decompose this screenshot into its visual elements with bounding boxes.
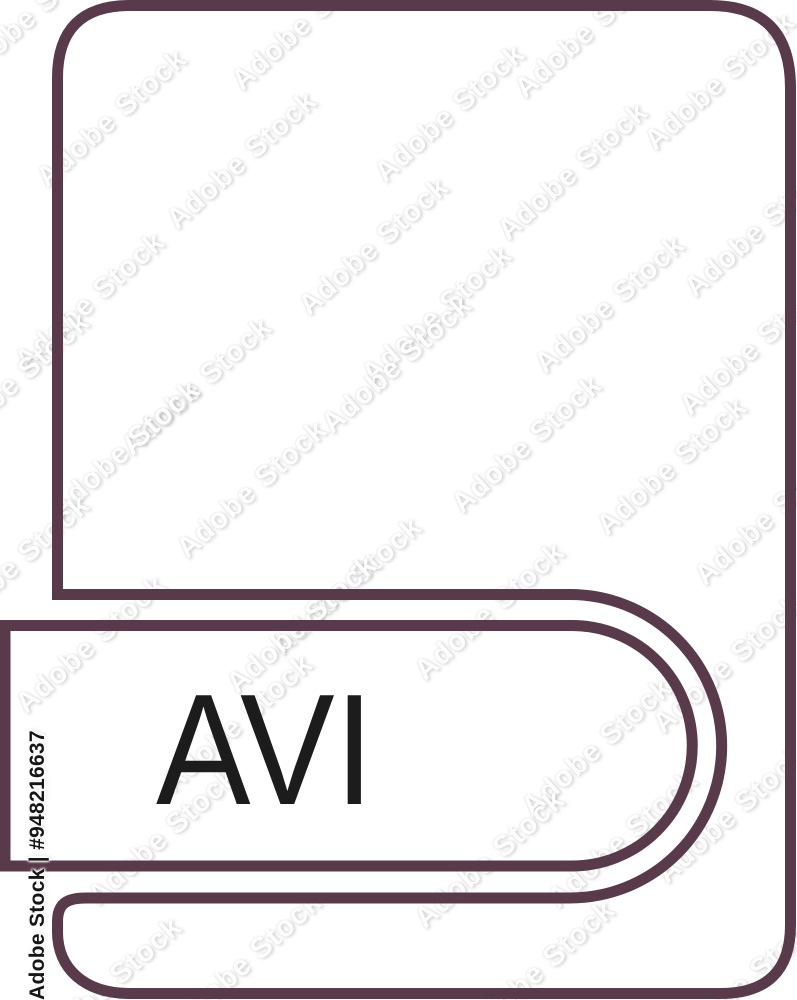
stock-credit-watermark: Adobe Stock | #948216637 <box>25 730 51 1000</box>
file-extension-label: AVI <box>156 662 374 838</box>
file-outline <box>58 6 791 994</box>
stock-image-preview: Adobe StockAdobe StockAdobe StockAdobe S… <box>0 0 797 1000</box>
stock-credit-text: Adobe Stock | #948216637 <box>26 730 49 1000</box>
avi-file-icon: AVI <box>0 0 797 1000</box>
